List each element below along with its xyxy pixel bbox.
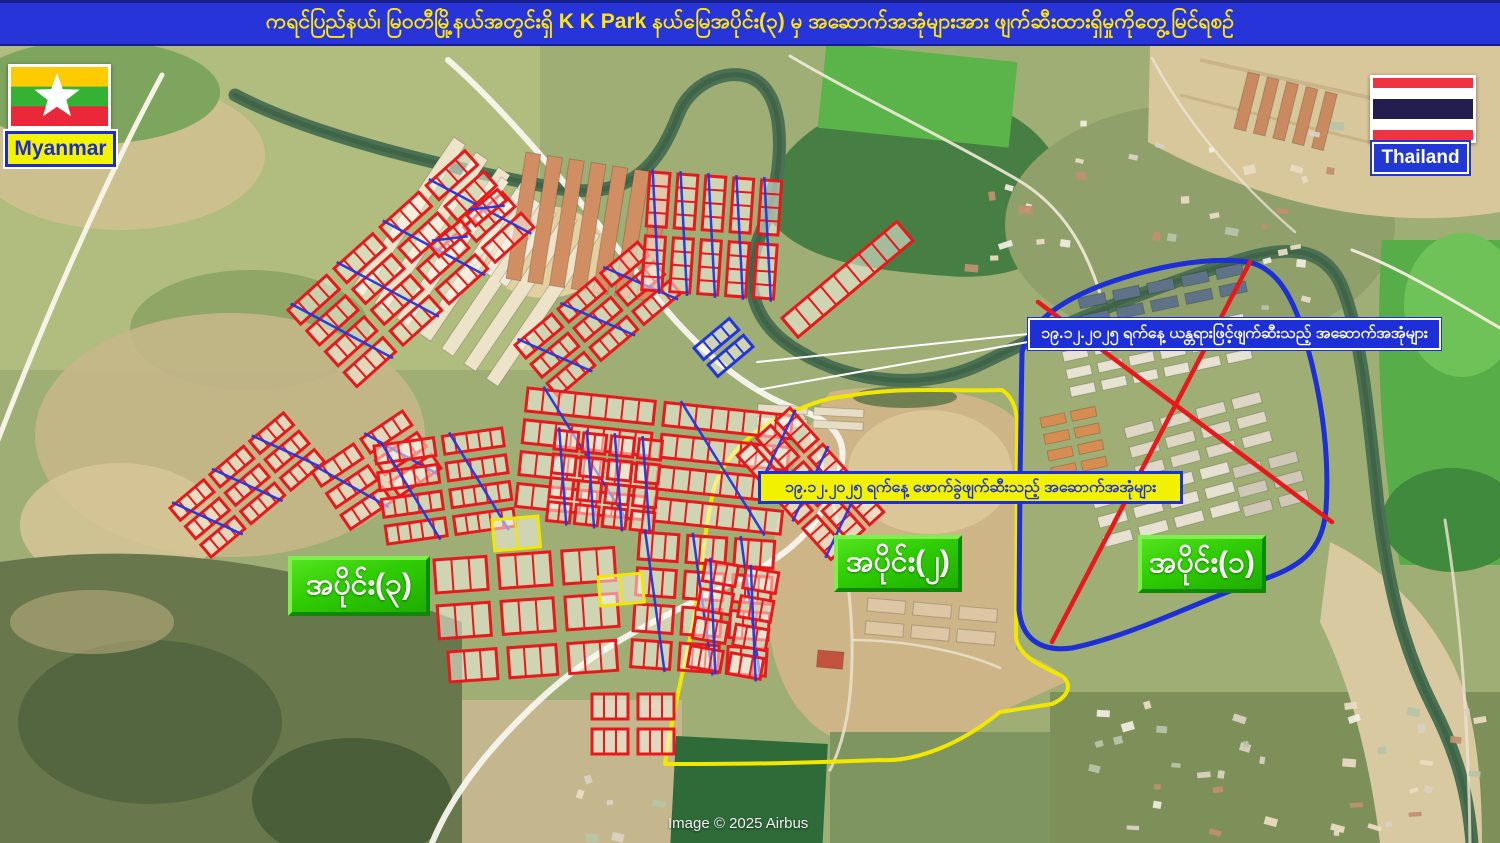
myanmar-label: Myanmar	[5, 131, 116, 167]
callout-blasting-text: ၁၉.၁၂.၂၀၂၅ ရက်နေ့ ဖောက်ခွဲဖျက်ဆီးသည့် အဆ…	[785, 476, 1157, 500]
section-2-text: အပိုင်း(၂)	[846, 541, 950, 586]
satellite-map	[0, 46, 1500, 843]
title-bar: ကရင်ပြည်နယ်၊ မြဝတီမြို့နယ်အတွင်းရှိ K K …	[0, 0, 1500, 46]
section-3-text: အပိုင်း(၃)	[306, 564, 412, 609]
thailand-label: Thailand	[1372, 142, 1469, 174]
thailand-flag	[1370, 75, 1476, 143]
page-title: ကရင်ပြည်နယ်၊ မြဝတီမြို့နယ်အတွင်းရှိ K K …	[266, 8, 1234, 39]
section-3-label: အပိုင်း(၃)	[288, 556, 430, 616]
screenshot-root: ကရင်ပြည်နယ်၊ မြဝတီမြို့နယ်အတွင်းရှိ K K …	[0, 0, 1500, 843]
section-1-text: အပိုင်း(၁)	[1149, 542, 1255, 587]
imagery-attribution: Image © 2025 Airbus	[668, 815, 808, 832]
callout-blasting-demolished: ၁၉.၁၂.၂၀၂၅ ရက်နေ့ ဖောက်ခွဲဖျက်ဆီးသည့် အဆ…	[758, 471, 1183, 504]
myanmar-flag	[8, 64, 111, 129]
callout-machinery-demolished: ၁၉.၁၂.၂၀၂၅ ရက်နေ့ ယန္တရားဖြင့်ဖျက်ဆီးသည့…	[1028, 318, 1441, 350]
attribution-text: Image © 2025 Airbus	[668, 815, 808, 832]
thailand-label-text: Thailand	[1381, 147, 1459, 169]
section-2-label: အပိုင်း(၂)	[834, 535, 962, 592]
callout-machinery-text: ၁၉.၁၂.၂၀၂၅ ရက်နေ့ ယန္တရားဖြင့်ဖျက်ဆီးသည့…	[1041, 322, 1428, 346]
myanmar-label-text: Myanmar	[14, 137, 106, 161]
section-1-label: အပိုင်း(၁)	[1138, 535, 1266, 593]
satellite-imagery	[0, 46, 1500, 843]
